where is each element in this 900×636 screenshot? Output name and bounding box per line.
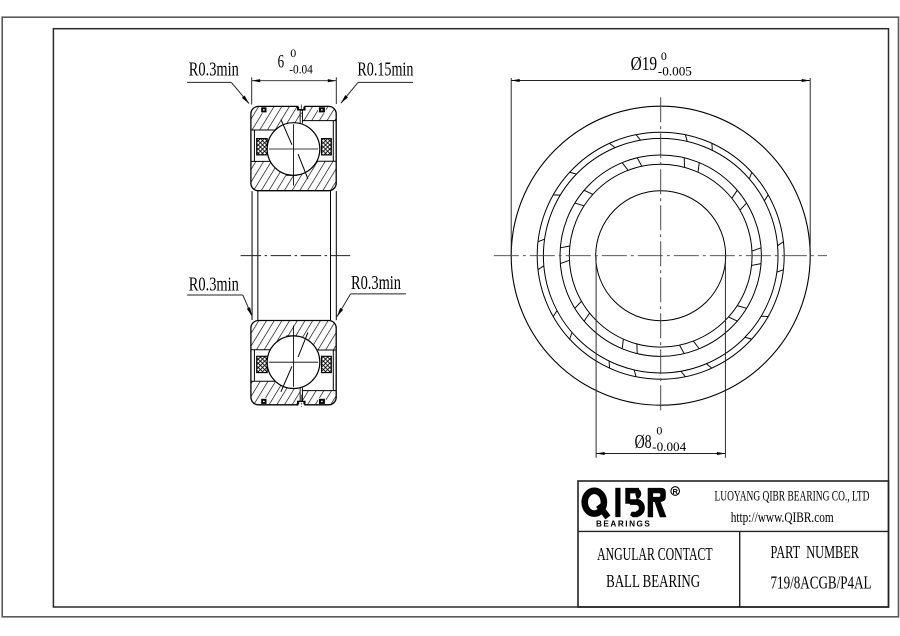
- svg-text:BEARINGS: BEARINGS: [596, 520, 651, 529]
- svg-text:0: 0: [290, 46, 296, 60]
- svg-text:719/8ACGB/P4AL: 719/8ACGB/P4AL: [771, 573, 872, 593]
- svg-text:LUOYANG QIBR BEARING CO., LTD: LUOYANG QIBR BEARING CO., LTD: [715, 488, 870, 504]
- svg-text:R0.3min: R0.3min: [351, 272, 401, 294]
- svg-text:ANGULAR CONTACT: ANGULAR CONTACT: [597, 544, 713, 564]
- svg-text:PART NUMBER: PART NUMBER: [771, 542, 860, 562]
- svg-text:6: 6: [278, 51, 285, 72]
- svg-text:Ø19: Ø19: [631, 53, 658, 75]
- svg-text:0: 0: [661, 49, 667, 63]
- svg-text:Ø8: Ø8: [635, 431, 652, 453]
- svg-text:R0.15min: R0.15min: [357, 59, 413, 81]
- svg-text:-0.004: -0.004: [652, 440, 687, 454]
- svg-text:http://www.QIBR.com: http://www.QIBR.com: [731, 510, 835, 526]
- svg-text:BALL BEARING: BALL BEARING: [606, 571, 700, 591]
- svg-text:-0.04: -0.04: [289, 63, 313, 77]
- svg-text:-0.005: -0.005: [658, 65, 692, 79]
- svg-text:R0.3min: R0.3min: [189, 59, 239, 81]
- svg-text:R0.3min: R0.3min: [189, 273, 239, 295]
- svg-text:R: R: [672, 487, 678, 496]
- svg-text:0: 0: [656, 424, 662, 438]
